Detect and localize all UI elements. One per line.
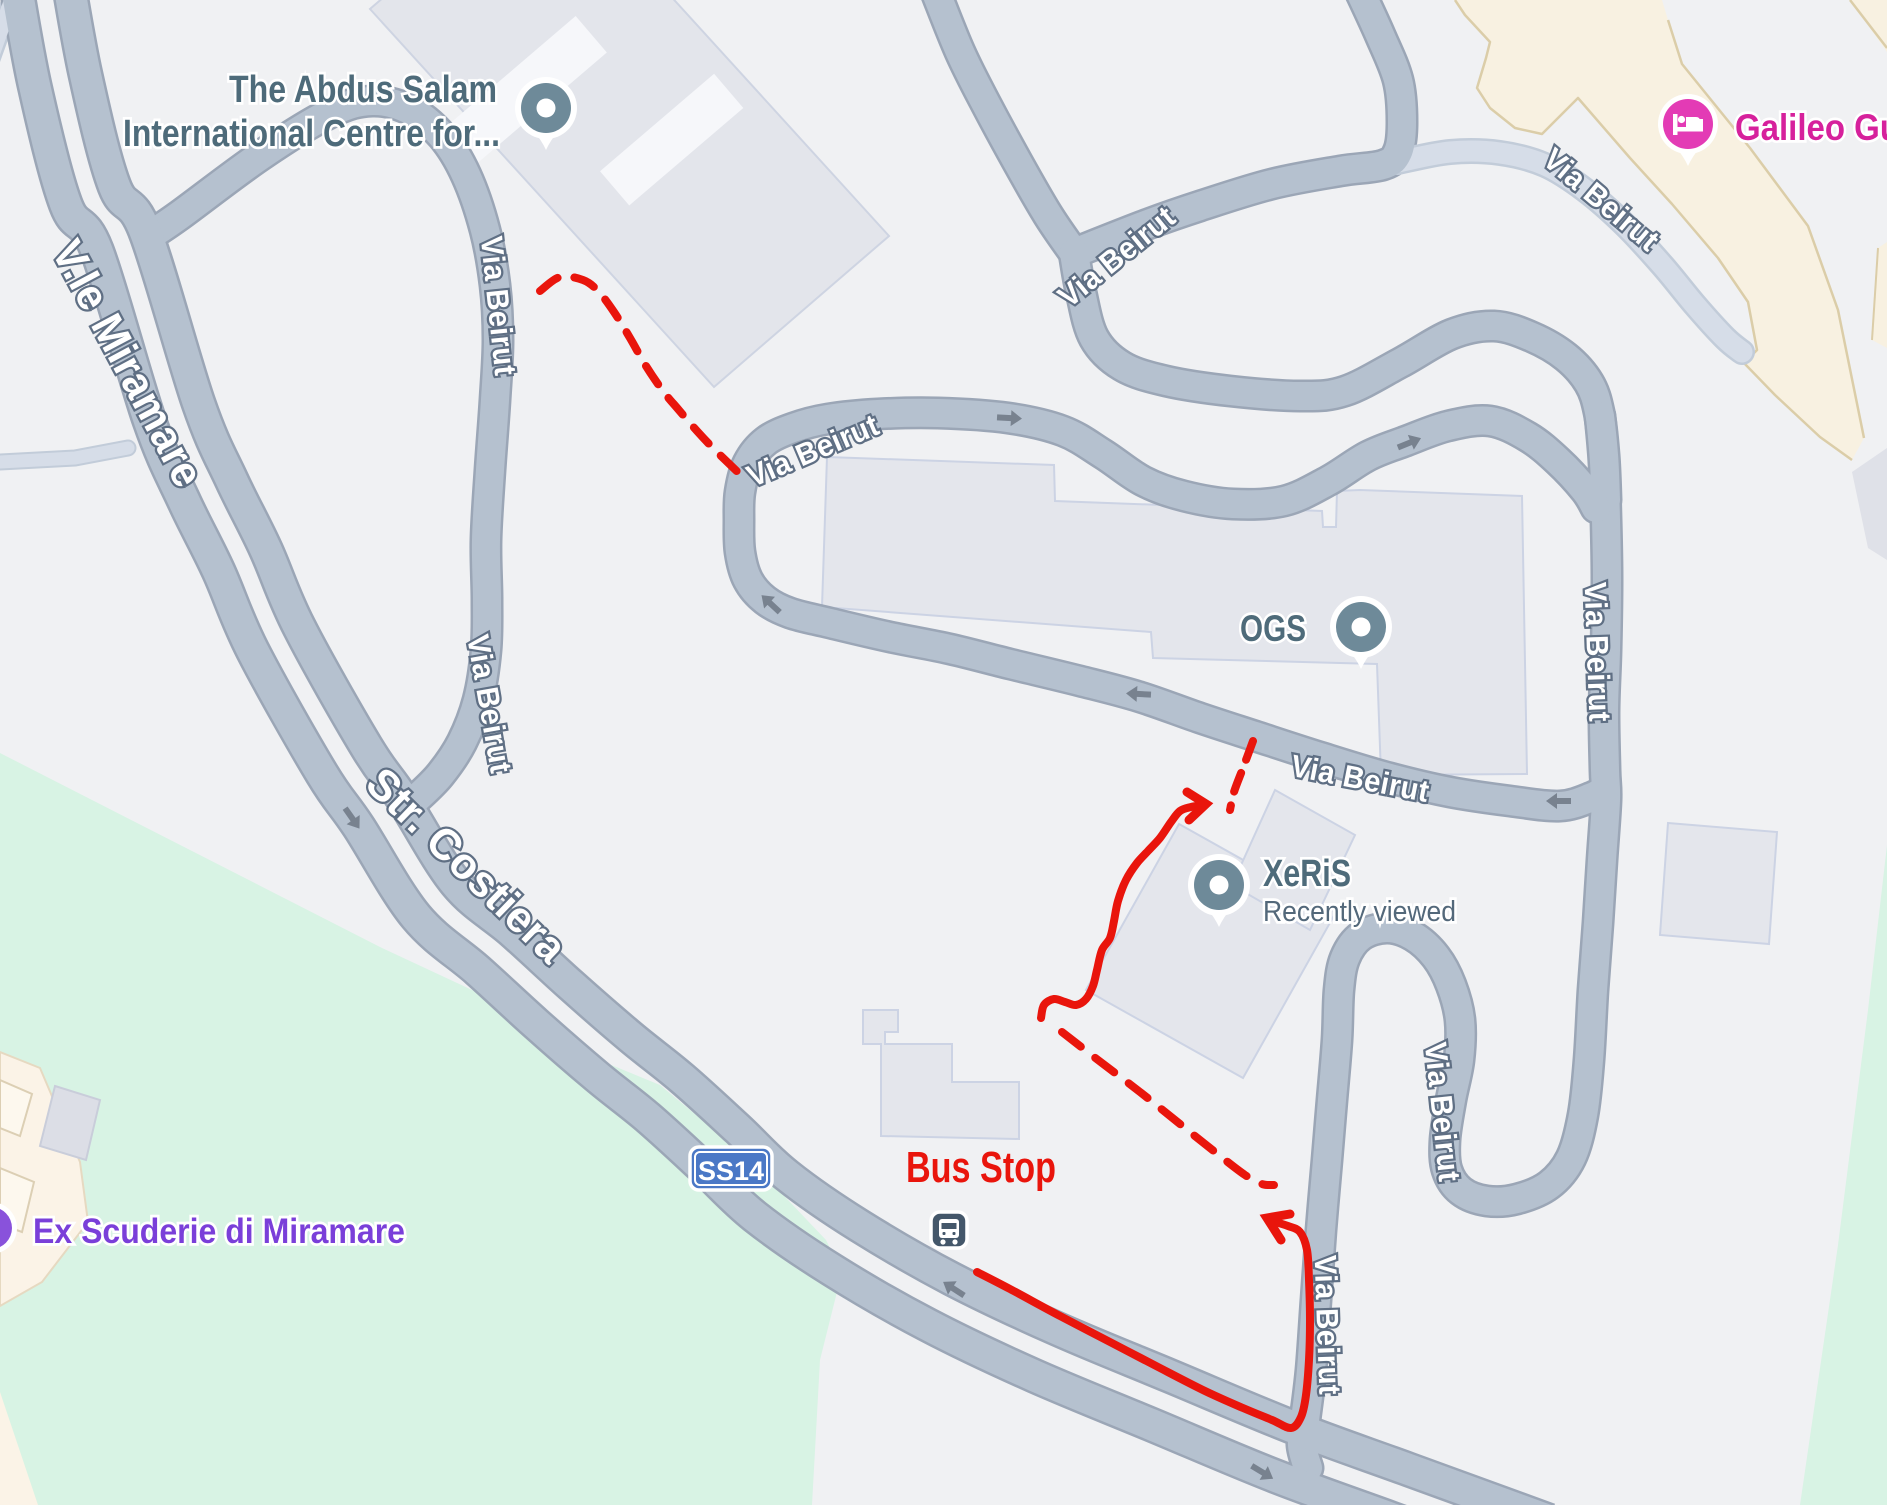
svg-text:Via Beirut: Via Beirut	[1578, 581, 1618, 722]
svg-text:SS14: SS14	[698, 1156, 764, 1186]
svg-text:Recently viewed: Recently viewed	[1263, 896, 1456, 928]
svg-text:OGS: OGS	[1240, 608, 1306, 649]
svg-text:Bus Stop: Bus Stop	[906, 1143, 1056, 1192]
svg-text:International Centre for...: International Centre for...	[123, 113, 500, 155]
svg-text:The Abdus Salam: The Abdus Salam	[229, 69, 497, 111]
svg-text:XeRiS: XeRiS	[1263, 853, 1351, 895]
svg-text:Galileo Gu: Galileo Gu	[1735, 107, 1887, 148]
svg-text:Ex Scuderie di Miramare: Ex Scuderie di Miramare	[33, 1212, 405, 1251]
